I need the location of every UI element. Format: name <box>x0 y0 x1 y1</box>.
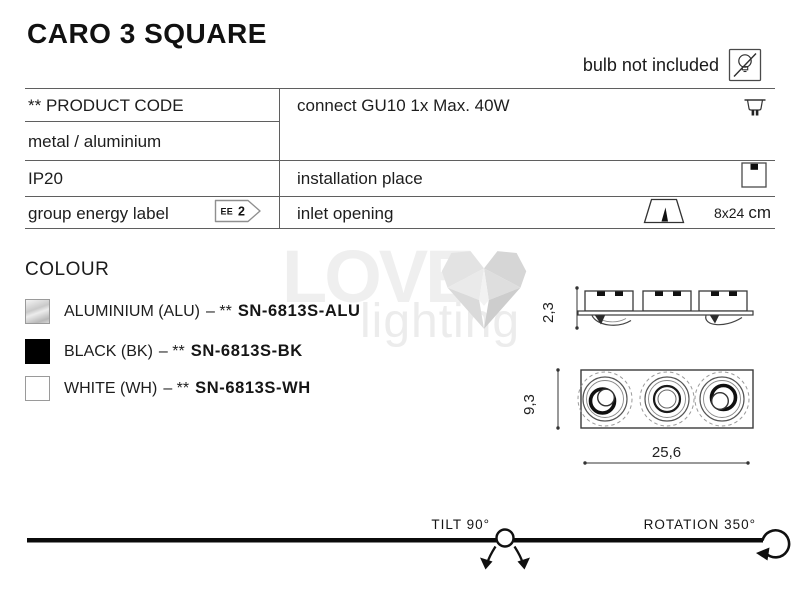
colour-code: SN-6813S-ALU <box>238 302 361 321</box>
dim-front-width: 25,6 <box>652 444 681 461</box>
swatch-white <box>25 376 50 401</box>
bulb-note-row: bulb not included <box>520 47 762 83</box>
colour-separator: – ** <box>159 343 185 361</box>
tilt-label: TILT 90° <box>431 517 490 532</box>
installation-label: installation place <box>297 169 423 189</box>
colour-option-black: BLACK (BK) – ** SN-6813S-BK <box>25 339 303 364</box>
colour-heading: COLOUR <box>25 259 109 281</box>
product-code-label: ** PRODUCT CODE <box>28 96 184 116</box>
dim-side-height: 2,3 <box>540 302 557 323</box>
material-label: metal / aluminium <box>28 132 161 152</box>
colour-name: WHITE (WH) <box>64 380 157 398</box>
footer-motion-diagram: TILT 90° ROTATION 350° <box>0 505 800 590</box>
table-border-bottom <box>25 228 775 229</box>
table-border-top <box>25 88 775 89</box>
colour-option-aluminium: ALUMINIUM (ALU) – ** SN-6813S-ALU <box>25 299 361 324</box>
rotation-arrow-icon <box>756 530 789 560</box>
ip-rating-label: IP20 <box>28 169 63 189</box>
inlet-size-unit: cm <box>748 203 771 222</box>
colour-separator: – ** <box>163 380 189 398</box>
energy-badge-ee: EE <box>221 207 234 217</box>
colour-separator: – ** <box>206 303 232 321</box>
table-divider-row3 <box>25 196 775 197</box>
page-title: CARO 3 SQUARE <box>27 18 267 50</box>
gu10-socket-icon <box>744 92 766 121</box>
colour-name: BLACK (BK) <box>64 343 153 361</box>
colour-name: ALUMINIUM (ALU) <box>64 303 200 321</box>
colour-code: SN-6813S-WH <box>195 379 311 398</box>
front-view-drawing: 9,3 25,6 <box>521 368 753 464</box>
spec-table: ** PRODUCT CODE metal / aluminium IP20 g… <box>25 88 775 228</box>
inlet-opening-label: inlet opening <box>297 204 393 224</box>
energy-label: group energy label <box>28 204 169 224</box>
bulb-crossed-icon <box>728 48 762 82</box>
technical-drawings: 2,3 9,3 25,6 <box>520 265 800 475</box>
energy-badge-class: 2 <box>238 205 245 219</box>
energy-class-badge: EE 2 <box>214 199 262 223</box>
connection-value: connect GU10 1x Max. 40W <box>297 96 510 116</box>
side-view-drawing: 2,3 <box>540 286 753 329</box>
swatch-black <box>25 339 50 364</box>
dim-front-height: 9,3 <box>521 394 538 415</box>
colour-code: SN-6813S-BK <box>191 342 303 361</box>
baseline-rule <box>27 538 763 543</box>
inlet-opening-icon <box>643 198 685 224</box>
table-divider-row1 <box>25 121 279 122</box>
inlet-size-number: 8x24 <box>714 205 744 221</box>
swatch-aluminium <box>25 299 50 324</box>
tilt-arrows-icon <box>480 530 530 570</box>
watermark-heart-icon <box>436 244 532 336</box>
colour-option-white: WHITE (WH) – ** SN-6813S-WH <box>25 376 311 401</box>
installation-place-icon <box>741 162 767 188</box>
bulb-note-text: bulb not included <box>583 55 719 76</box>
rotation-label: ROTATION 350° <box>644 517 756 532</box>
table-divider-row2 <box>25 160 775 161</box>
inlet-size-value: 8x24cm <box>685 203 771 223</box>
table-divider-vertical <box>279 88 280 228</box>
